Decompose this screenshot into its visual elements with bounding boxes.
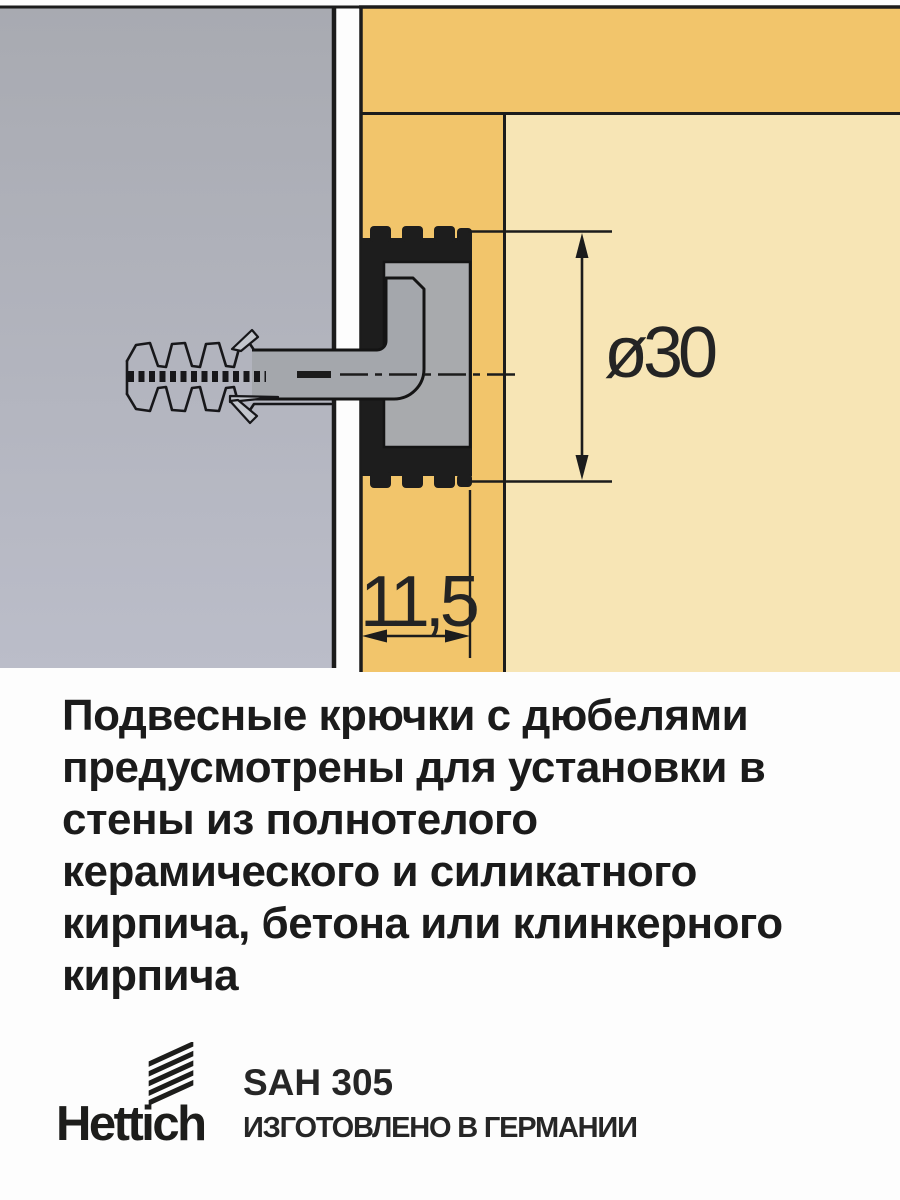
product-image: ø30 11,5 Подвесные крючки с дюбелями пре…	[0, 0, 900, 1200]
product-description: Подвесные крючки с дюбелями предусмотрен…	[62, 690, 872, 1002]
brand-wordmark: Hettich	[56, 1096, 205, 1152]
wall-cross-section	[0, 6, 334, 668]
model-number: SAH 305	[243, 1062, 393, 1104]
panel-interior	[505, 114, 900, 672]
installation-diagram: ø30 11,5	[0, 0, 900, 676]
diameter-dimension-label: ø30	[604, 313, 716, 393]
depth-dimension-label: 11,5	[360, 562, 478, 642]
country-of-origin: ИЗГОТОВЛЕНО В ГЕРМАНИИ	[243, 1112, 637, 1145]
